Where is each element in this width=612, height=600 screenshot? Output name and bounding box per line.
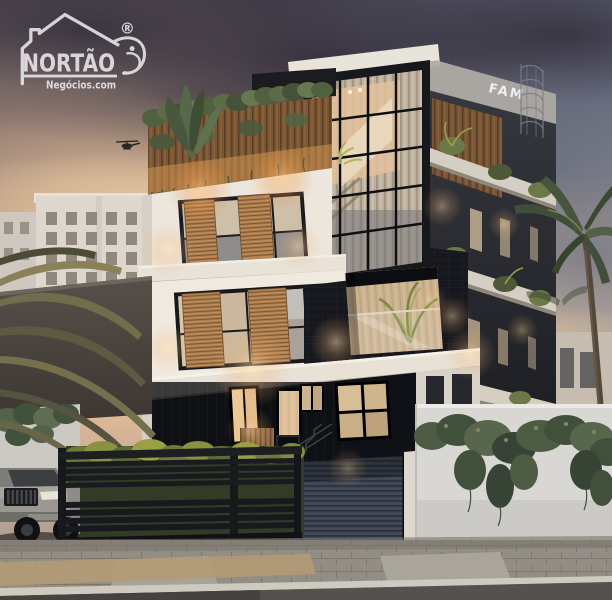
real-estate-render: FAM [0, 0, 612, 600]
render-scene: FAM [0, 0, 612, 600]
headlight [40, 491, 60, 500]
ground-window-small [300, 384, 324, 412]
ground-window-right [335, 380, 392, 441]
sidewalk [0, 536, 612, 600]
